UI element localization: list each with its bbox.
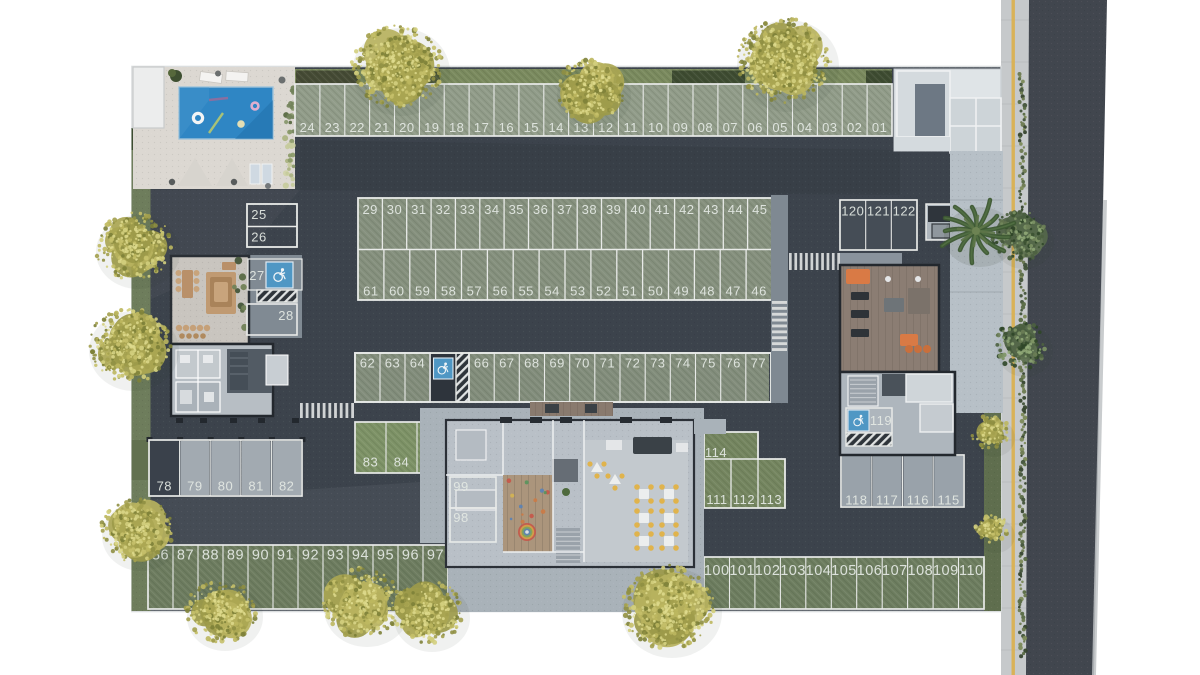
svg-text:113: 113 xyxy=(760,492,782,507)
svg-text:119: 119 xyxy=(870,413,892,428)
svg-text:67: 67 xyxy=(499,356,514,371)
svg-text:78: 78 xyxy=(157,479,172,494)
svg-text:53: 53 xyxy=(570,284,585,299)
svg-text:49: 49 xyxy=(674,284,689,299)
svg-text:69: 69 xyxy=(549,356,564,371)
svg-text:29: 29 xyxy=(362,202,377,217)
svg-text:42: 42 xyxy=(679,202,694,217)
svg-text:122: 122 xyxy=(893,204,916,219)
svg-text:84: 84 xyxy=(394,455,409,470)
svg-text:117: 117 xyxy=(876,493,898,508)
svg-text:106: 106 xyxy=(857,563,883,579)
svg-text:61: 61 xyxy=(363,284,378,299)
svg-text:100: 100 xyxy=(704,563,730,579)
svg-text:40: 40 xyxy=(630,202,645,217)
svg-text:20: 20 xyxy=(399,120,414,135)
svg-text:56: 56 xyxy=(493,284,508,299)
svg-text:118: 118 xyxy=(845,493,867,508)
svg-text:55: 55 xyxy=(518,284,533,299)
svg-text:97: 97 xyxy=(427,548,444,564)
svg-text:107: 107 xyxy=(882,563,908,579)
svg-text:75: 75 xyxy=(700,356,715,371)
svg-text:103: 103 xyxy=(780,563,806,579)
svg-text:111: 111 xyxy=(706,492,727,507)
svg-text:89: 89 xyxy=(227,548,244,564)
svg-text:110: 110 xyxy=(959,563,984,579)
svg-text:80: 80 xyxy=(218,479,233,494)
svg-text:51: 51 xyxy=(622,284,637,299)
svg-text:101: 101 xyxy=(729,563,755,579)
svg-text:03: 03 xyxy=(822,120,837,135)
svg-text:44: 44 xyxy=(728,202,743,217)
svg-text:07: 07 xyxy=(723,120,738,135)
svg-text:11: 11 xyxy=(624,120,639,135)
svg-text:98: 98 xyxy=(453,510,468,525)
svg-text:102: 102 xyxy=(755,563,781,579)
svg-text:39: 39 xyxy=(606,202,621,217)
svg-text:63: 63 xyxy=(385,356,400,371)
svg-text:27: 27 xyxy=(249,268,264,283)
svg-text:36: 36 xyxy=(533,202,548,217)
svg-text:72: 72 xyxy=(625,356,640,371)
svg-text:50: 50 xyxy=(648,284,663,299)
svg-text:06: 06 xyxy=(747,120,762,135)
svg-text:38: 38 xyxy=(582,202,597,217)
svg-text:77: 77 xyxy=(751,356,766,371)
svg-text:02: 02 xyxy=(847,120,862,135)
svg-text:62: 62 xyxy=(360,356,375,371)
svg-text:33: 33 xyxy=(460,202,475,217)
svg-text:93: 93 xyxy=(327,548,344,564)
svg-text:08: 08 xyxy=(698,120,713,135)
svg-text:15: 15 xyxy=(524,120,539,135)
svg-text:57: 57 xyxy=(467,284,482,299)
svg-text:26: 26 xyxy=(251,230,266,245)
svg-text:68: 68 xyxy=(524,356,539,371)
svg-text:01: 01 xyxy=(872,120,887,135)
svg-text:115: 115 xyxy=(937,493,959,508)
svg-text:32: 32 xyxy=(435,202,450,217)
svg-text:18: 18 xyxy=(449,120,464,135)
svg-text:23: 23 xyxy=(325,120,340,135)
svg-text:120: 120 xyxy=(841,204,864,219)
svg-text:112: 112 xyxy=(733,492,755,507)
svg-text:92: 92 xyxy=(302,548,319,564)
svg-text:121: 121 xyxy=(867,204,890,219)
svg-text:66: 66 xyxy=(474,356,489,371)
svg-text:45: 45 xyxy=(752,202,767,217)
svg-text:64: 64 xyxy=(410,356,425,371)
svg-text:114: 114 xyxy=(705,445,727,460)
svg-text:09: 09 xyxy=(673,120,688,135)
svg-text:88: 88 xyxy=(202,548,219,564)
svg-text:24: 24 xyxy=(300,120,315,135)
svg-text:25: 25 xyxy=(251,207,266,222)
svg-text:16: 16 xyxy=(499,120,514,135)
svg-text:108: 108 xyxy=(908,563,934,579)
svg-text:46: 46 xyxy=(751,284,766,299)
svg-text:14: 14 xyxy=(548,120,563,135)
svg-text:28: 28 xyxy=(278,308,293,323)
svg-text:41: 41 xyxy=(655,202,670,217)
svg-text:74: 74 xyxy=(675,356,690,371)
svg-text:47: 47 xyxy=(725,284,740,299)
svg-text:17: 17 xyxy=(474,120,489,135)
svg-text:109: 109 xyxy=(933,563,959,579)
svg-text:94: 94 xyxy=(352,548,369,564)
svg-text:104: 104 xyxy=(806,563,832,579)
svg-text:19: 19 xyxy=(424,120,439,135)
svg-text:54: 54 xyxy=(544,284,559,299)
svg-text:81: 81 xyxy=(248,479,263,494)
svg-text:59: 59 xyxy=(415,284,430,299)
svg-text:105: 105 xyxy=(831,563,857,579)
svg-text:21: 21 xyxy=(374,120,389,135)
svg-text:52: 52 xyxy=(596,284,611,299)
svg-text:116: 116 xyxy=(907,493,929,508)
svg-text:05: 05 xyxy=(772,120,787,135)
svg-text:95: 95 xyxy=(377,548,394,564)
svg-text:30: 30 xyxy=(387,202,402,217)
svg-text:96: 96 xyxy=(402,548,419,564)
svg-text:83: 83 xyxy=(363,455,378,470)
svg-text:58: 58 xyxy=(441,284,456,299)
svg-text:82: 82 xyxy=(279,479,294,494)
svg-text:10: 10 xyxy=(648,120,663,135)
svg-text:87: 87 xyxy=(177,548,194,564)
svg-text:22: 22 xyxy=(349,120,364,135)
svg-text:91: 91 xyxy=(277,548,294,564)
svg-text:04: 04 xyxy=(797,120,812,135)
svg-text:71: 71 xyxy=(600,356,615,371)
svg-text:35: 35 xyxy=(509,202,524,217)
svg-text:99: 99 xyxy=(453,479,468,494)
svg-text:90: 90 xyxy=(252,548,269,564)
svg-text:60: 60 xyxy=(389,284,404,299)
svg-text:34: 34 xyxy=(484,202,499,217)
svg-text:43: 43 xyxy=(703,202,718,217)
svg-text:70: 70 xyxy=(574,356,589,371)
svg-text:76: 76 xyxy=(725,356,740,371)
svg-text:48: 48 xyxy=(700,284,715,299)
svg-text:31: 31 xyxy=(411,202,426,217)
svg-text:73: 73 xyxy=(650,356,665,371)
svg-text:79: 79 xyxy=(187,479,202,494)
svg-text:37: 37 xyxy=(557,202,572,217)
